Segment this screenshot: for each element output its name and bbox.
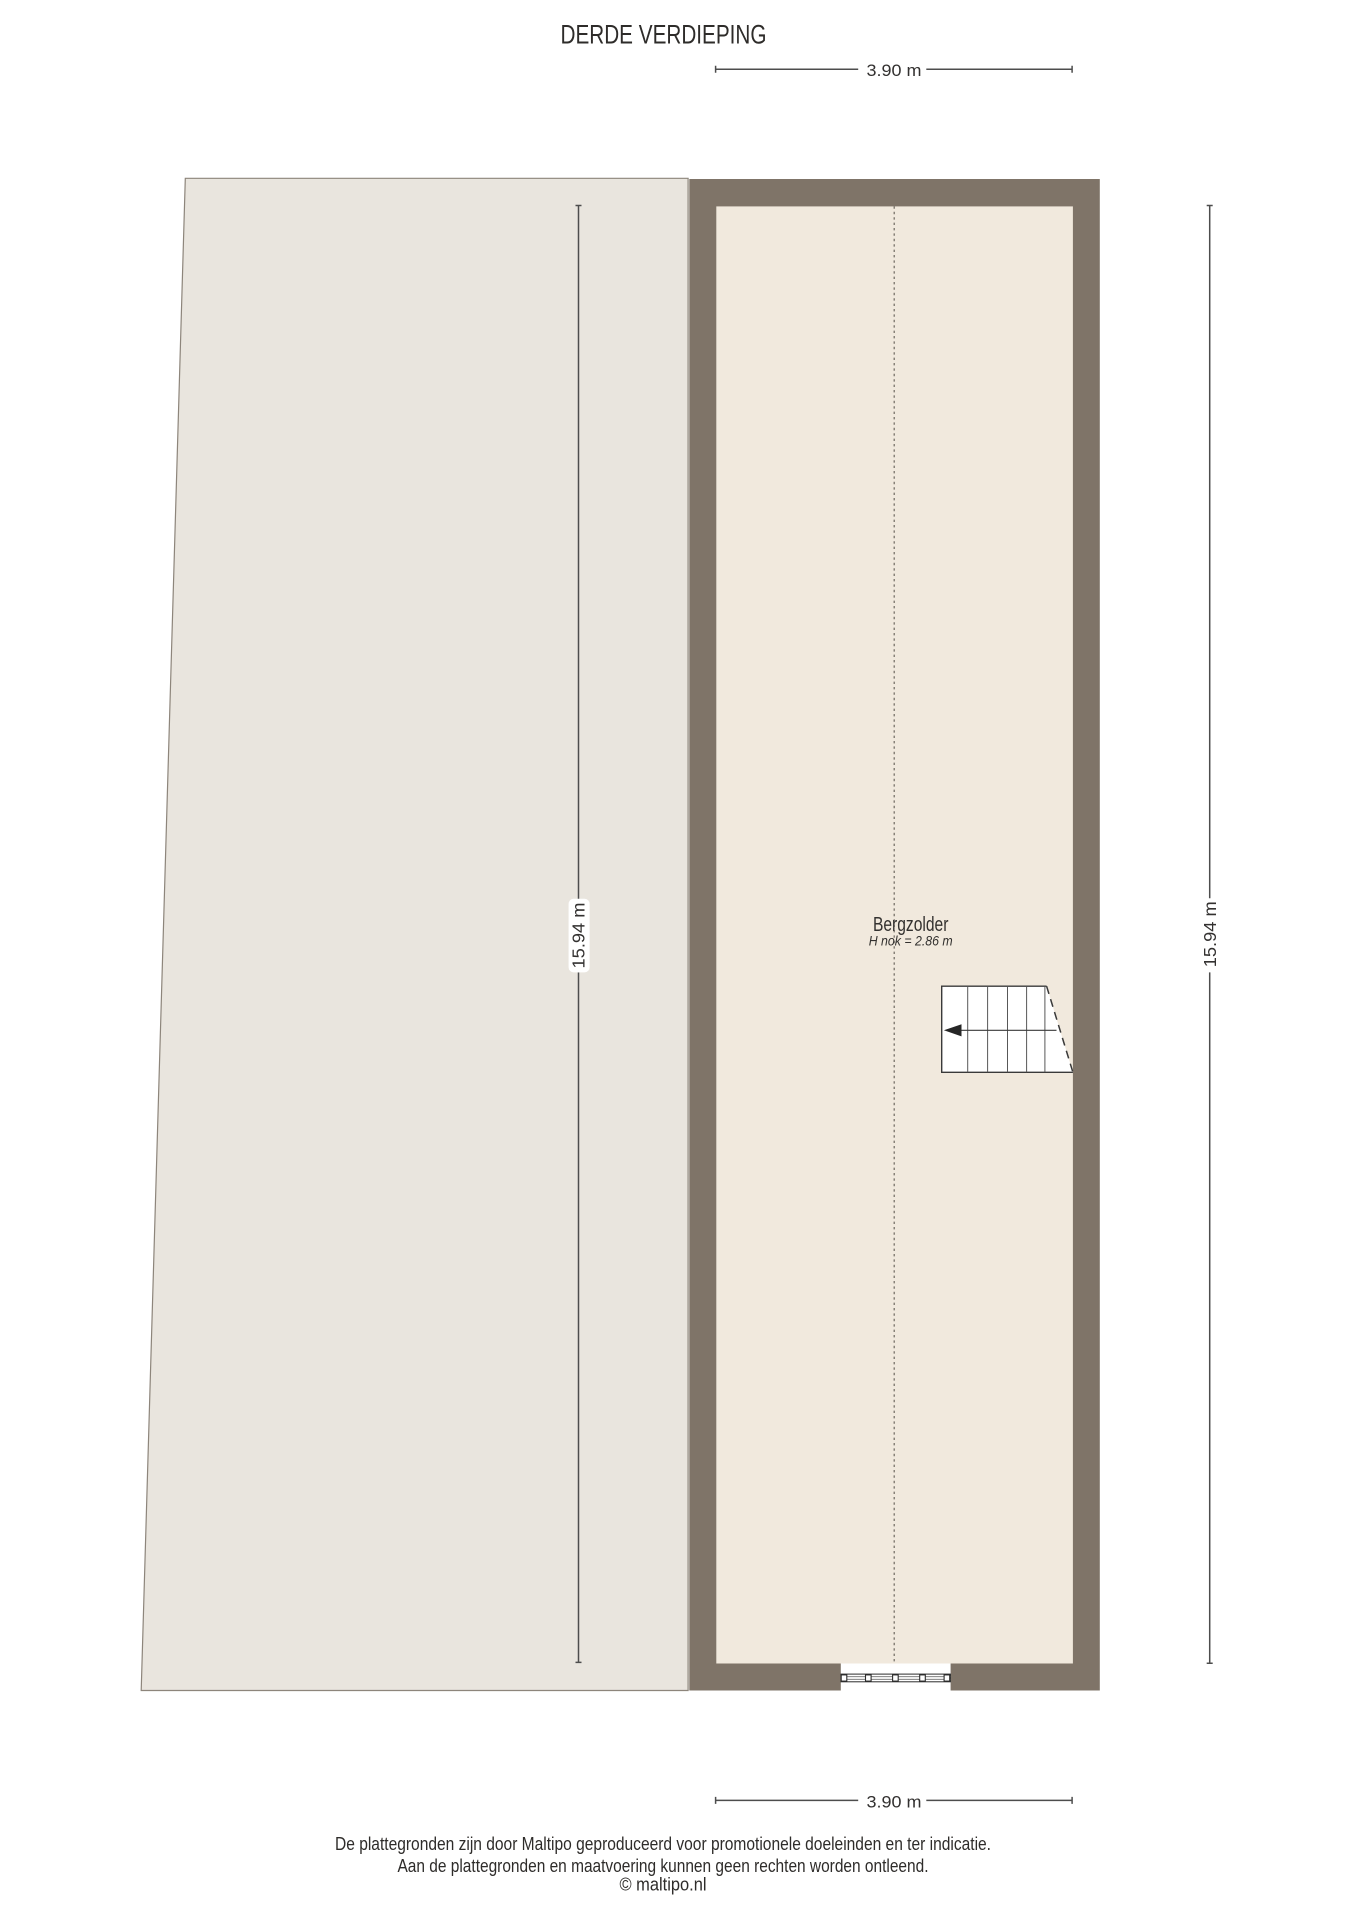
- svg-text:3.90 m: 3.90 m: [867, 1792, 922, 1811]
- svg-text:3.90 m: 3.90 m: [867, 61, 922, 80]
- svg-text:15.94 m: 15.94 m: [1200, 901, 1220, 967]
- svg-text:H nok = 2.86 m: H nok = 2.86 m: [869, 934, 953, 949]
- svg-text:Aan de plattegronden en maatvo: Aan de plattegronden en maatvoering kunn…: [398, 1856, 929, 1876]
- svg-text:© maltipo.nl: © maltipo.nl: [620, 1874, 707, 1894]
- svg-text:DERDE VERDIEPING: DERDE VERDIEPING: [561, 20, 767, 50]
- svg-text:15.94 m: 15.94 m: [569, 903, 589, 969]
- svg-text:De plattegronden zijn door Mal: De plattegronden zijn door Maltipo gepro…: [335, 1834, 991, 1854]
